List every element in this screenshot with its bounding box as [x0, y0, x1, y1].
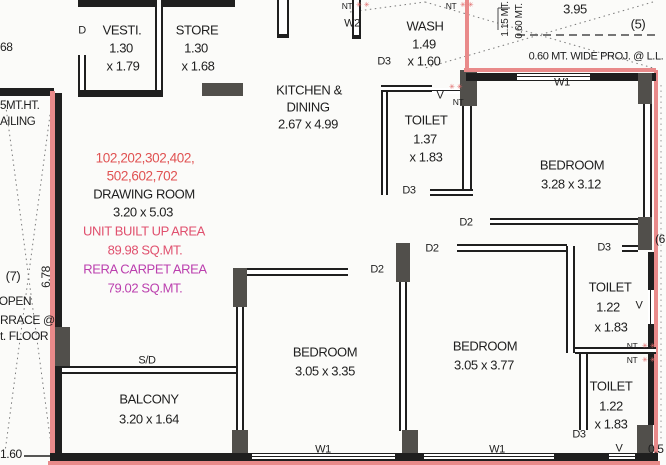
wall: [648, 252, 654, 425]
red-boundary-right: [654, 70, 658, 464]
room-name-kitchen: DINING: [286, 101, 329, 114]
nt-mark: NT: [446, 2, 457, 11]
door-d2-mark: D2: [459, 218, 472, 229]
red-boundary-bottom: [48, 461, 660, 465]
wall: [381, 85, 432, 92]
ref-number: (7): [6, 270, 21, 283]
nt-mark: NT: [342, 2, 353, 11]
door-d2-mark: D2: [370, 265, 383, 276]
room-name-wash: WASH: [407, 20, 444, 33]
room-dim: 3.28 x 3.12: [541, 178, 601, 191]
vent-mark: V: [636, 301, 643, 312]
wall: [399, 282, 407, 431]
wall: [462, 106, 472, 196]
pillar: [638, 73, 652, 104]
dim-proj-depth: 0.60 MT.: [515, 3, 525, 38]
room-dim: x 1.83: [594, 418, 627, 431]
room-dim: 1.37: [413, 133, 437, 146]
wall: [566, 246, 575, 353]
terrace-note: RRACE @: [0, 313, 55, 327]
room-name-kitchen: KITCHEN &: [276, 84, 342, 97]
red-boundary-top: [464, 68, 656, 72]
dim-top: 3.95: [563, 3, 587, 16]
dim-bottom-left: 1.60: [0, 447, 22, 461]
room-dim: x 1.79: [106, 60, 139, 73]
nt-mark: NT: [627, 342, 638, 351]
vent-window: [609, 454, 635, 459]
projection-note: 0.60 MT. WIDE PROJ. @ L.L.: [529, 52, 664, 63]
wall: [236, 306, 244, 432]
nt-mark: NT: [627, 356, 638, 365]
wall: [247, 268, 348, 276]
red-hatch-mark: [460, 1, 474, 9]
ref-number: (6: [655, 232, 665, 246]
vent-mark: V: [616, 444, 623, 455]
wall: [430, 189, 473, 196]
room-dim: 1.22: [596, 301, 620, 314]
room-name-bedroom: BEDROOM: [293, 346, 357, 359]
room-name-bedroom: BEDROOM: [453, 340, 517, 353]
room-name-toilet: TOILET: [405, 114, 448, 127]
pillar: [396, 243, 410, 282]
window-w1-mark: W1: [315, 445, 331, 456]
room-name-balcony: BALCONY: [119, 393, 178, 406]
room-name-toilet: TOILET: [589, 281, 632, 294]
room-name-toilet: TOILET: [590, 380, 633, 393]
wall: [643, 104, 652, 217]
floor-plan: 68 5MT.HT. AILING D VESTI. 1.30 x 1.79 S…: [0, 0, 666, 465]
room-name-vesti: VESTI.: [103, 24, 142, 37]
room-name-store: STORE: [176, 24, 219, 37]
room-dim: x 1.68: [181, 60, 214, 73]
wall: [78, 0, 157, 7]
window-w1-mark: W1: [554, 78, 570, 89]
railing-note: AILING: [0, 116, 35, 128]
wall: [155, 7, 163, 91]
room-dim: 3.20 x 5.03: [113, 206, 173, 219]
wall: [352, 35, 361, 39]
room-dim: x 1.60: [407, 55, 440, 68]
sliding-door-wall: [62, 366, 237, 374]
room-dim: 1.49: [412, 38, 436, 51]
room-dim: 1.22: [599, 400, 623, 413]
dim-left-height: 6.78: [40, 266, 52, 288]
vent-window: [648, 290, 654, 324]
kitchen-platform: [202, 83, 243, 96]
door-d3-mark: D3: [597, 243, 610, 254]
pillar: [55, 327, 70, 366]
window-w2-mark: W2: [344, 19, 360, 30]
door-d3-mark: D3: [572, 430, 585, 441]
wall: [78, 55, 86, 91]
carpet-area-label: RERA CARPET AREA: [83, 263, 206, 276]
dim-proj-depth: 1.15 MT.: [501, 1, 511, 36]
unit-numbers: 102,202,302,402,: [96, 151, 195, 165]
built-up-area-label: UNIT BUILT UP AREA: [83, 225, 205, 238]
door-d3-mark: D3: [402, 186, 415, 197]
door-d3-mark: D3: [377, 57, 390, 68]
wall: [161, 0, 235, 7]
ref-number: (5): [631, 18, 646, 31]
room-dim: 2.67 x 4.99: [278, 118, 338, 131]
room-name-bedroom: BEDROOM: [540, 159, 604, 172]
wall: [277, 34, 289, 38]
carpet-area-value: 79.02 SQ.MT.: [108, 282, 183, 295]
room-dim: 3.05 x 3.35: [295, 365, 355, 378]
pillar: [638, 217, 652, 250]
railing-note: 5MT.HT.: [0, 100, 39, 112]
window-w1-mark: W1: [489, 445, 505, 456]
built-up-area-value: 89.98 SQ.MT.: [108, 244, 183, 257]
railing-wall: [0, 88, 54, 96]
room-name-drawing: DRAWING ROOM: [93, 188, 195, 201]
nt-mark: NT: [453, 98, 464, 107]
wall: [277, 0, 289, 36]
door-d-mark: D: [78, 26, 86, 37]
sliding-door-mark: S/D: [138, 356, 155, 367]
wall: [579, 354, 588, 430]
wall: [78, 90, 163, 97]
red-hatch-mark: [642, 356, 656, 364]
dim-fragment: 0.5: [648, 442, 663, 456]
wall: [457, 244, 567, 252]
red-boundary-top: [465, 0, 469, 70]
wall: [55, 93, 62, 461]
room-dim: x 1.83: [409, 151, 442, 164]
wall: [381, 85, 388, 195]
room-dim: 1.30: [184, 42, 208, 55]
door-d2-mark: D2: [425, 244, 438, 255]
unit-numbers: 502,602,702: [107, 169, 178, 183]
room-dim: 1.30: [109, 42, 133, 55]
terrace-note: t. FLOOR: [0, 329, 48, 343]
dim-fragment: 68: [0, 40, 13, 54]
room-dim: x 1.83: [594, 321, 627, 334]
pillar: [233, 268, 247, 307]
red-hatch-mark: [642, 342, 656, 350]
vent-mark: V: [437, 91, 444, 102]
terrace-note: OPEN: [0, 295, 31, 307]
wall: [490, 218, 638, 225]
red-hatch-mark: [449, 83, 463, 91]
wall: [622, 245, 638, 252]
red-hatch-mark: [356, 1, 370, 9]
room-dim: 3.05 x 3.77: [454, 359, 514, 372]
room-dim: 3.20 x 1.64: [119, 413, 179, 426]
